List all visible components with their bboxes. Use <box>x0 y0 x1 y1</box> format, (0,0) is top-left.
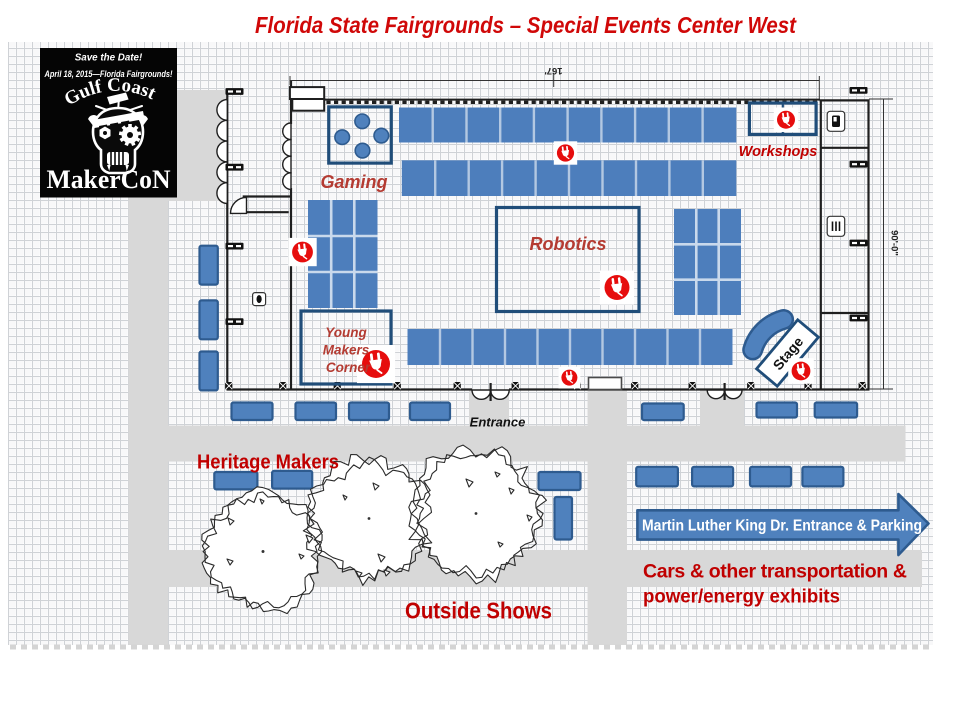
svg-text:Save the Date!: Save the Date! <box>75 53 143 64</box>
svg-text:MakerCoN: MakerCoN <box>47 165 171 194</box>
svg-text:Heritage Makers: Heritage Makers <box>197 452 339 474</box>
svg-text:Workshops: Workshops <box>739 144 818 160</box>
svg-text:Cars & other transportation &: Cars & other transportation & <box>643 561 907 583</box>
svg-text:90'-0": 90'-0" <box>889 230 900 256</box>
svg-text:Florida State Fairgrounds – Sp: Florida State Fairgrounds – Special Even… <box>255 12 797 38</box>
svg-text:Martin Luther King Dr. Entranc: Martin Luther King Dr. Entrance & Parkin… <box>642 518 922 535</box>
svg-text:167': 167' <box>544 65 562 76</box>
svg-text:Outside Shows: Outside Shows <box>405 598 552 624</box>
svg-text:Gaming: Gaming <box>320 172 387 192</box>
svg-text:Entrance: Entrance <box>470 415 526 430</box>
svg-text:Corner: Corner <box>326 360 371 375</box>
svg-text:Makers: Makers <box>323 343 370 358</box>
svg-text:power/energy exhibits: power/energy exhibits <box>643 586 840 608</box>
svg-text:Robotics: Robotics <box>529 234 606 254</box>
svg-text:Young: Young <box>325 325 367 340</box>
